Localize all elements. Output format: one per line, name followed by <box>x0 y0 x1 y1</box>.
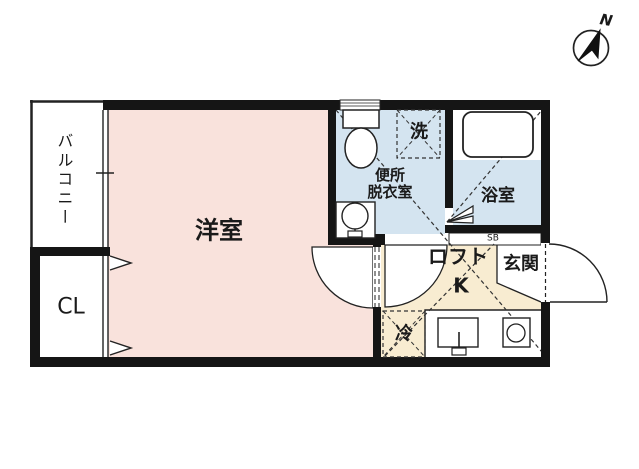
floorplan-canvas: バルコニー 洋室 CL 便所 脱衣室 洗 浴室 SB ロフト K 玄関 冷 N <box>0 0 639 469</box>
kitchen-faucet-base <box>452 348 466 355</box>
loft-label: ロフト <box>428 247 488 268</box>
closet-label: CL <box>57 295 85 318</box>
bathtub <box>463 112 533 157</box>
kitchen-label: K <box>453 276 469 297</box>
toilet-tank <box>343 110 379 128</box>
room-door-opening <box>373 247 381 307</box>
toilet-room-label-line2: 脱衣室 <box>367 185 412 201</box>
kitchen-sink <box>438 318 478 347</box>
wall-right-upper <box>541 100 550 243</box>
washer-label: 洗 <box>410 124 428 143</box>
western-room-label: 洋室 <box>195 218 243 243</box>
wall-top <box>103 100 550 110</box>
compass-north-label: N <box>598 12 613 30</box>
stove-burner <box>507 324 525 342</box>
compass-icon <box>574 30 609 66</box>
wall-closet-top <box>30 247 110 256</box>
wall-toilet-bath <box>445 110 453 208</box>
shoe-box-label: SB <box>487 234 499 243</box>
entrance-label: 玄関 <box>503 256 539 275</box>
vanity-basin <box>342 203 368 229</box>
wall-left-closet <box>30 247 40 367</box>
refrigerator-label: 冷 <box>395 326 413 345</box>
toilet-bowl <box>345 128 377 168</box>
toilet-room-label-line1: 便所 <box>375 168 405 184</box>
wall-bath-bottom <box>445 225 550 233</box>
floorplan-drawing <box>0 0 639 469</box>
wall-bottom <box>30 357 550 367</box>
wall-toilet-left <box>328 110 336 240</box>
bathroom-label: 浴室 <box>481 188 515 206</box>
vanity-faucet-base <box>348 231 362 237</box>
entrance-door-arc <box>549 244 607 302</box>
balcony-label: バルコニー <box>55 133 72 228</box>
toilet-window <box>340 100 380 110</box>
wall-room-kitchen-lower <box>373 307 381 357</box>
